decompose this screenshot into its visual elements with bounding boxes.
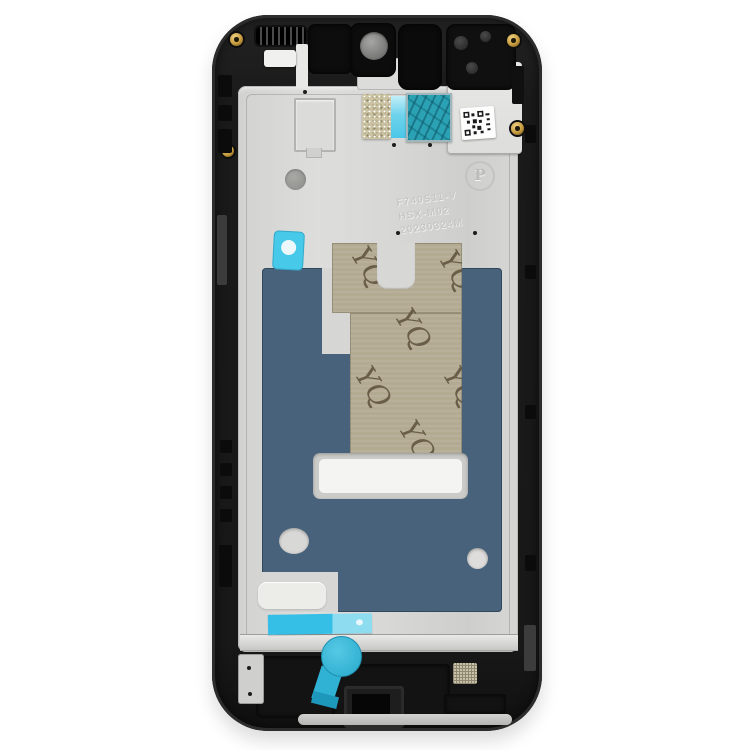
screw-hole-dot [247, 666, 251, 670]
screw-hole-dot [392, 143, 396, 147]
earpiece-grille [256, 27, 306, 45]
metal-bracket [264, 50, 296, 67]
frame-groove [524, 625, 536, 671]
screw-boss [466, 62, 478, 74]
teal-thermal-tape [406, 93, 452, 142]
frame-notch [525, 125, 536, 143]
bottom-left-bracket [238, 654, 264, 704]
metal-tab [296, 44, 308, 88]
tab-hole [281, 240, 297, 256]
adhesive-dot [285, 169, 306, 190]
screw-hole-dot [396, 231, 400, 235]
speaker-mesh-emboss [453, 663, 477, 684]
screw-hole-dot [428, 143, 432, 147]
embossed-tab [306, 148, 322, 158]
cyan-tape-bottom [268, 613, 372, 635]
frame-notch [525, 405, 536, 419]
product-photo-stage: P F740S11-V HSX-M02 20230324M YQ YQ [0, 0, 750, 750]
frame-notch [220, 486, 232, 499]
screw-boss [480, 31, 491, 42]
front-camera-hole [360, 32, 388, 60]
frame-rib [512, 66, 524, 104]
qr-label [460, 106, 496, 140]
bottom-inner-rim [298, 714, 512, 725]
plate-oval-hole [279, 528, 309, 554]
embossed-square [294, 98, 336, 152]
top-right-plastic-cluster [446, 24, 516, 90]
screw-hole-dot [303, 90, 307, 94]
frame-notch [220, 463, 232, 476]
tape-highlight-dot [356, 619, 363, 625]
plate-round-hole [467, 548, 488, 569]
gold-screw-bushing [507, 34, 520, 47]
embossed-slot [313, 453, 468, 499]
frame-groove [217, 215, 227, 285]
qr-code [463, 110, 493, 136]
frame-notch [525, 265, 536, 279]
gold-screw-bushing [230, 33, 243, 46]
frame-notch [218, 105, 232, 121]
frame-notch [218, 75, 232, 97]
phone-frame: P F740S11-V HSX-M02 20230324M YQ YQ [212, 15, 542, 731]
cyan-pull-tab-top [272, 230, 305, 271]
glitter-adhesive-sticker [362, 94, 391, 139]
frame-notch [219, 545, 232, 587]
frame-notch [525, 555, 536, 571]
frame-notch [220, 440, 232, 453]
bottom-plastic-right [444, 694, 506, 714]
frame-notch [218, 129, 232, 153]
screw-hole-dot [248, 692, 252, 696]
screw-hole-dot [473, 231, 477, 235]
lower-cross-rail [240, 634, 518, 651]
embossed-rounded-rect [258, 582, 326, 609]
liner-notch [377, 243, 415, 289]
screw-boss [454, 36, 468, 50]
cyan-tape-top [391, 96, 406, 138]
sensor-recess [308, 24, 352, 74]
gold-screw-bushing [511, 122, 524, 135]
embossed-slot-inner [319, 459, 462, 493]
speaker-cavity-inner [352, 694, 390, 714]
sim-tray-recess [398, 24, 442, 90]
pull-tab-head [321, 636, 362, 677]
frame-notch [220, 509, 232, 522]
